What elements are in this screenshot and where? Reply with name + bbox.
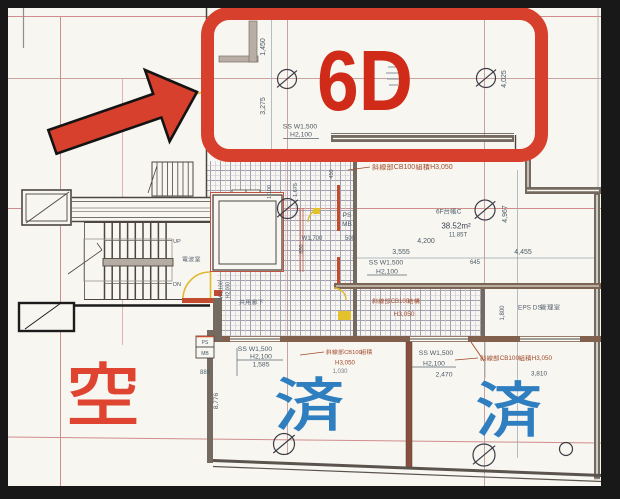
- svg-text:6D: 6D: [317, 34, 413, 129]
- svg-text:38.52m²: 38.52m²: [441, 222, 471, 231]
- svg-text:H2,100: H2,100: [423, 361, 445, 368]
- svg-text:3,810: 3,810: [531, 371, 548, 378]
- svg-text:SS W1,500: SS W1,500: [419, 350, 454, 357]
- svg-text:4,025: 4,025: [501, 70, 508, 88]
- svg-text:CB100: CB100: [344, 350, 362, 356]
- svg-text:H3,050: H3,050: [532, 355, 553, 362]
- svg-text:4,967: 4,967: [502, 205, 509, 223]
- svg-text:1,675: 1,675: [293, 183, 299, 197]
- svg-text:450: 450: [329, 169, 335, 178]
- svg-text:CB100: CB100: [391, 299, 410, 305]
- svg-text:H2,100: H2,100: [250, 354, 272, 361]
- svg-text:H2,100: H2,100: [376, 269, 398, 276]
- svg-text:CB100: CB100: [500, 355, 520, 362]
- svg-text:CB100: CB100: [394, 164, 416, 171]
- svg-text:W1,700: W1,700: [302, 236, 323, 242]
- svg-text:H3,050: H3,050: [335, 360, 356, 367]
- svg-text:H3,050: H3,050: [394, 311, 415, 318]
- svg-text:H2,000: H2,000: [226, 282, 232, 298]
- svg-text:2,470: 2,470: [435, 372, 452, 379]
- svg-text:1,585: 1,585: [252, 362, 269, 369]
- svg-text:1,100: 1,100: [267, 185, 273, 199]
- svg-text:500: 500: [345, 236, 356, 242]
- svg-text:8,776: 8,776: [213, 392, 220, 409]
- svg-text:SS W1,500: SS W1,500: [283, 124, 318, 131]
- svg-text:C: C: [457, 208, 462, 215]
- svg-text:PS: PS: [343, 212, 352, 219]
- svg-text:850: 850: [299, 244, 305, 253]
- svg-text:UP: UP: [173, 239, 181, 245]
- svg-text:645: 645: [470, 260, 481, 266]
- svg-text:SS W1,500: SS W1,500: [238, 346, 273, 353]
- svg-text:H3,050: H3,050: [430, 164, 453, 171]
- svg-text:MB: MB: [342, 221, 352, 228]
- svg-text:H2,100: H2,100: [290, 132, 312, 139]
- svg-text:11.85T: 11.85T: [449, 233, 468, 239]
- svg-text:MB: MB: [201, 351, 209, 357]
- svg-text:4,455: 4,455: [514, 249, 532, 256]
- svg-text:3,555: 3,555: [392, 249, 410, 256]
- svg-text:1,030: 1,030: [332, 369, 348, 375]
- svg-text:SS W1,500: SS W1,500: [369, 260, 404, 267]
- svg-text:W1,100: W1,100: [219, 281, 225, 298]
- svg-text:6F: 6F: [436, 208, 444, 215]
- svg-text:1,450: 1,450: [260, 38, 267, 56]
- svg-text:4,200: 4,200: [417, 238, 435, 245]
- svg-text:1,800: 1,800: [500, 305, 506, 321]
- svg-text:3,275: 3,275: [260, 97, 267, 115]
- svg-text:PS: PS: [202, 340, 209, 346]
- svg-text:DN: DN: [173, 282, 181, 288]
- svg-text:885: 885: [200, 370, 211, 376]
- svg-text:EPS DS: EPS DS: [518, 304, 543, 311]
